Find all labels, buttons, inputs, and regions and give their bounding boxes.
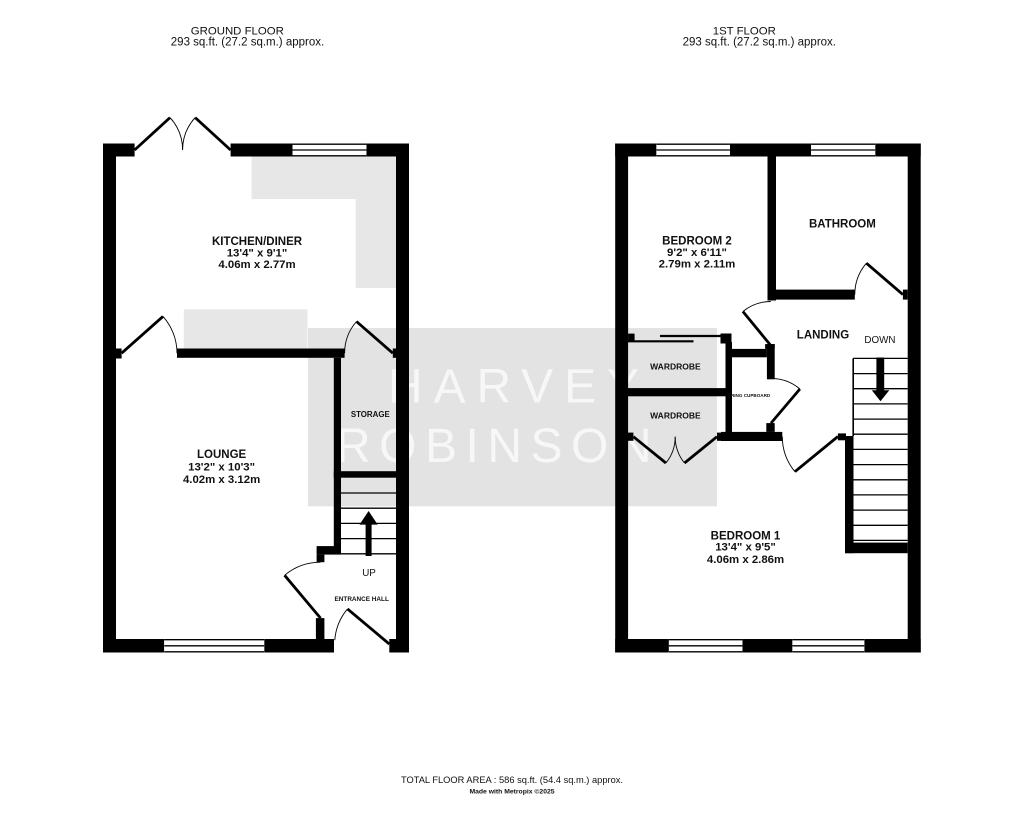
svg-text:BATHROOM: BATHROOM [809, 219, 876, 231]
svg-text:LANDING: LANDING [797, 330, 849, 342]
svg-text:AIRING CUPBOARD: AIRING CUPBOARD [726, 393, 771, 398]
svg-text:13'4" x 9'1": 13'4" x 9'1" [227, 248, 288, 260]
svg-text:DOWN: DOWN [864, 335, 895, 346]
svg-text:BEDROOM 2: BEDROOM 2 [662, 235, 732, 247]
svg-text:WARDROBE: WARDROBE [650, 411, 701, 421]
svg-text:ENTRANCE HALL: ENTRANCE HALL [335, 596, 389, 603]
svg-text:9'2" x 6'11": 9'2" x 6'11" [667, 247, 727, 259]
svg-text:HARVEY: HARVEY [388, 361, 650, 414]
svg-text:13'2" x 10'3": 13'2" x 10'3" [188, 462, 255, 474]
svg-text:2.79m x 2.11m: 2.79m x 2.11m [659, 259, 736, 271]
svg-text:WARDROBE: WARDROBE [650, 361, 701, 371]
svg-text:KITCHEN/DINER: KITCHEN/DINER [212, 236, 303, 248]
svg-text:4.02m x 3.12m: 4.02m x 3.12m [183, 474, 260, 486]
svg-text:STORAGE: STORAGE [351, 410, 390, 419]
svg-text:4.06m x 2.77m: 4.06m x 2.77m [218, 259, 295, 271]
svg-text:TOTAL FLOOR AREA : 586 sq.ft.: TOTAL FLOOR AREA : 586 sq.ft. (54.4 sq.m… [401, 775, 623, 785]
svg-text:ROBINSON: ROBINSON [336, 420, 660, 473]
svg-text:LOUNGE: LOUNGE [197, 449, 247, 461]
svg-text:Made with Metropix ©2025: Made with Metropix ©2025 [469, 787, 554, 795]
svg-text:293 sq.ft. (27.2 sq.m.) approx: 293 sq.ft. (27.2 sq.m.) approx. [683, 37, 836, 49]
svg-text:UP: UP [362, 568, 376, 579]
svg-text:4.06m x 2.86m: 4.06m x 2.86m [707, 554, 784, 566]
svg-text:293 sq.ft. (27.2 sq.m.) approx: 293 sq.ft. (27.2 sq.m.) approx. [171, 37, 324, 49]
svg-text:13'4" x 9'5": 13'4" x 9'5" [715, 541, 776, 553]
